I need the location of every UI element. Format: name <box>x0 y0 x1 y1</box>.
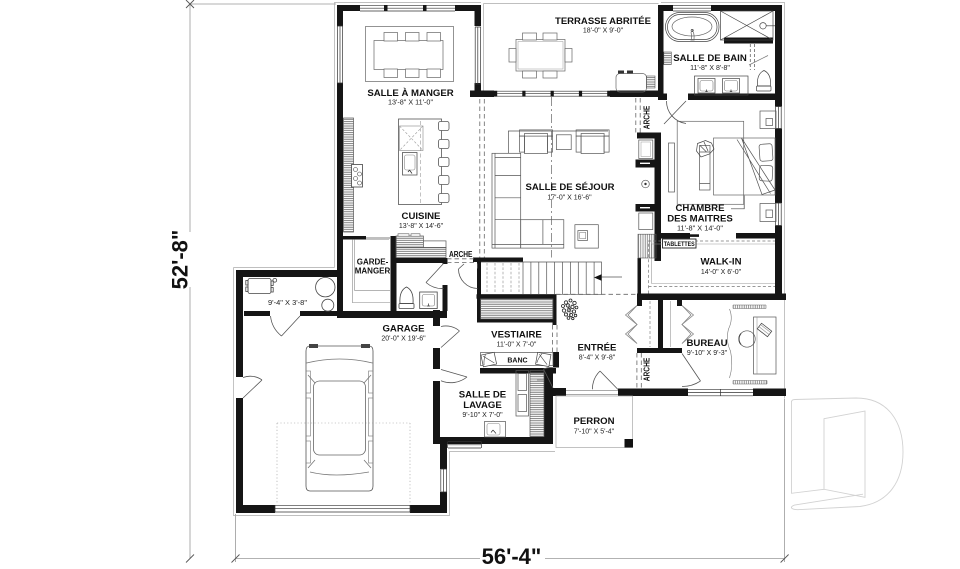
svg-text:17'-0" X 16'-6": 17'-0" X 16'-6" <box>547 195 592 202</box>
svg-text:9'-4" X 3'-8": 9'-4" X 3'-8" <box>268 298 307 307</box>
svg-text:TABLETTES: TABLETTES <box>664 241 696 248</box>
svg-text:SALLE DE: SALLE DE <box>459 390 507 401</box>
svg-text:14'-0" X 6'-0": 14'-0" X 6'-0" <box>701 269 742 276</box>
svg-text:LAVAGE: LAVAGE <box>463 400 502 411</box>
svg-text:SALLE DE SÉJOUR: SALLE DE SÉJOUR <box>526 181 615 193</box>
svg-text:ARCHE: ARCHE <box>643 357 652 381</box>
svg-text:18'-0" X 9'-0": 18'-0" X 9'-0" <box>583 28 624 35</box>
svg-text:9'-10" X 7'-0": 9'-10" X 7'-0" <box>462 412 503 419</box>
svg-text:DES MAITRES: DES MAITRES <box>667 214 733 225</box>
svg-text:SALLE À MANGER: SALLE À MANGER <box>367 87 453 99</box>
svg-text:CHAMBRE: CHAMBRE <box>675 203 725 214</box>
svg-text:PERRON: PERRON <box>573 416 614 427</box>
svg-text:BUREAU: BUREAU <box>686 338 727 349</box>
svg-text:WALK-IN: WALK-IN <box>700 257 741 268</box>
svg-text:GARDE-: GARDE- <box>357 258 389 267</box>
svg-text:52'-8": 52'-8" <box>168 230 193 290</box>
svg-text:13'-8" X 11'-0": 13'-8" X 11'-0" <box>388 100 434 107</box>
svg-text:CUISINE: CUISINE <box>402 211 442 222</box>
svg-text:8'-4" X 9'-8": 8'-4" X 9'-8" <box>579 355 616 362</box>
svg-text:11'-8" X 14'-0": 11'-8" X 14'-0" <box>677 226 724 233</box>
svg-text:11'-8" X 8'-8": 11'-8" X 8'-8" <box>690 65 730 72</box>
svg-text:BANC: BANC <box>507 358 527 365</box>
svg-text:ARCHE: ARCHE <box>449 250 473 259</box>
svg-text:7'-10" X 5'-4": 7'-10" X 5'-4" <box>574 429 615 436</box>
svg-text:13'-8" X 14'-6": 13'-8" X 14'-6" <box>399 223 444 230</box>
svg-text:VESTIAIRE: VESTIAIRE <box>491 330 542 341</box>
svg-text:SALLE DE BAIN: SALLE DE BAIN <box>673 53 747 64</box>
svg-text:9'-10" X 9'-3": 9'-10" X 9'-3" <box>687 350 728 357</box>
svg-text:20'-0" X 19'-6": 20'-0" X 19'-6" <box>381 336 426 343</box>
svg-text:ARCHE: ARCHE <box>643 105 652 129</box>
svg-text:GARAGE: GARAGE <box>382 324 425 335</box>
svg-text:ENTRÉE: ENTRÉE <box>578 342 618 354</box>
svg-text:11'-0" X 7'-0": 11'-0" X 7'-0" <box>497 342 537 349</box>
svg-text:TERRASSE ABRITÉE: TERRASSE ABRITÉE <box>555 15 652 27</box>
svg-text:56'-4": 56'-4" <box>482 544 542 569</box>
svg-text:MANGER: MANGER <box>355 267 391 276</box>
